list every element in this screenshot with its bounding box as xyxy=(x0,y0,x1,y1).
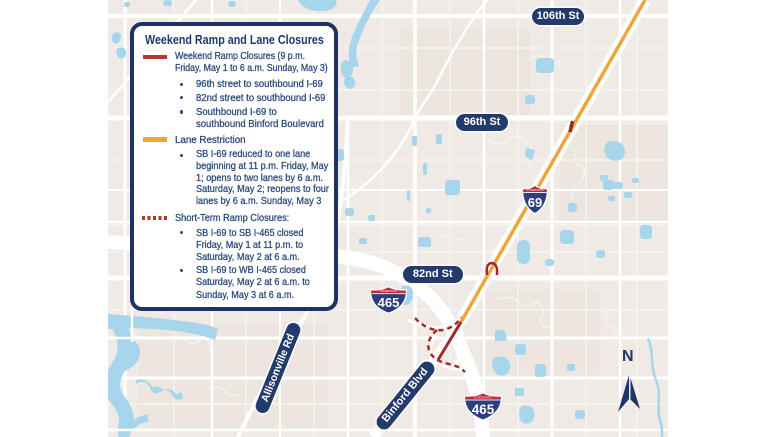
svg-text:465: 465 xyxy=(378,295,400,310)
svg-text:465: 465 xyxy=(472,401,495,416)
svg-text:INTERSTATE: INTERSTATE xyxy=(475,395,492,399)
svg-text:INTERSTATE: INTERSTATE xyxy=(380,289,397,293)
svg-text:INTERSTATE: INTERSTATE xyxy=(527,188,544,192)
svg-text:69: 69 xyxy=(528,195,542,210)
